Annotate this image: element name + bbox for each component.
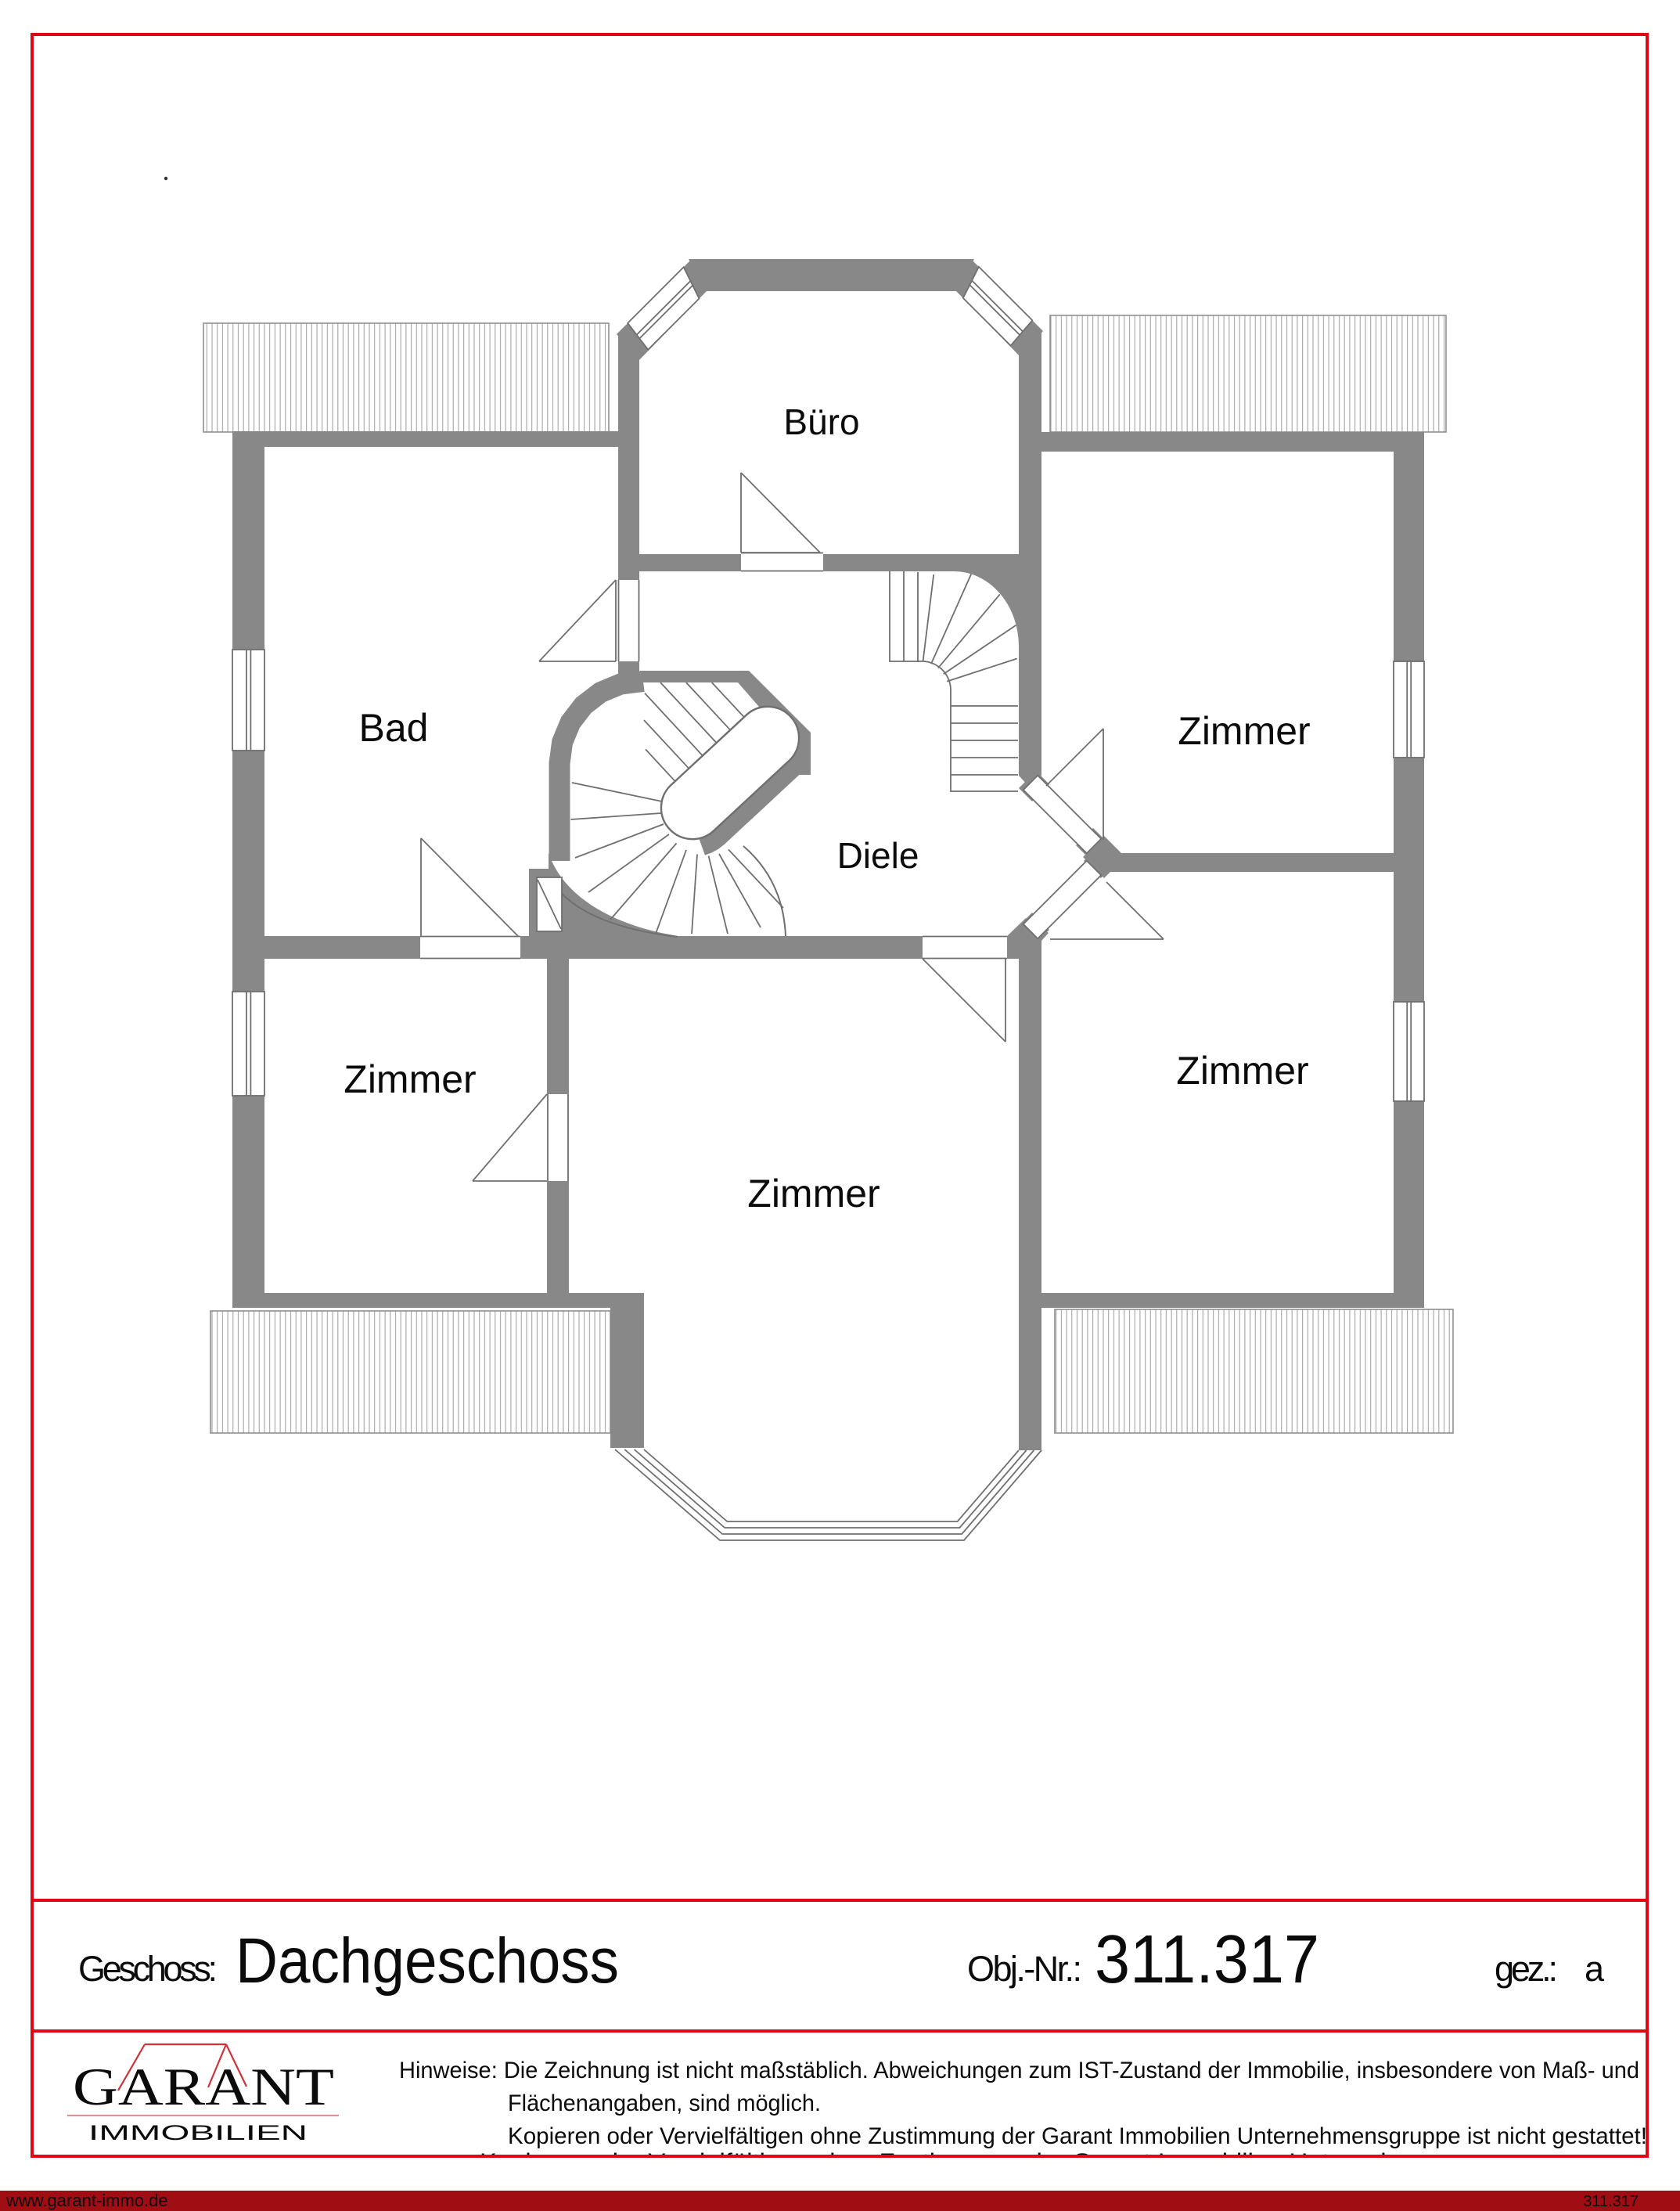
svg-text:311.317: 311.317 [1583, 2193, 1639, 2210]
svg-text:311.317: 311.317 [1095, 1921, 1319, 1997]
svg-text:Kopieren oder Vervielfältigen: Kopieren oder Vervielfältigen ohne Zusti… [508, 2123, 1647, 2149]
svg-text:Obj.-Nr.:: Obj.-Nr.: [967, 1949, 1082, 1989]
svg-text:GARANT: GARANT [73, 2057, 334, 2116]
svg-text:Dachgeschoss: Dachgeschoss [236, 1925, 619, 1997]
svg-text:Zimmer: Zimmer [747, 1172, 880, 1215]
svg-text:IMMOBILIEN: IMMOBILIEN [88, 2121, 308, 2144]
svg-text:Bad: Bad [359, 706, 429, 750]
svg-text:Diele: Diele [837, 835, 919, 876]
svg-text:a: a [1585, 1949, 1605, 1989]
svg-text:Hinweise: Die Zeichnung ist ni: Hinweise: Die Zeichnung ist nicht maßstä… [399, 2058, 1639, 2083]
svg-text:Zimmer: Zimmer [344, 1057, 476, 1101]
svg-text:Büro: Büro [783, 402, 859, 442]
svg-text:gez.:: gez.: [1495, 1949, 1558, 1989]
svg-text:Zimmer: Zimmer [1176, 1049, 1308, 1093]
svg-text:www.garant-immo.de: www.garant-immo.de [5, 2191, 168, 2210]
svg-text:Flächenangaben, sind möglich.: Flächenangaben, sind möglich. [508, 2090, 821, 2116]
svg-text:Zimmer: Zimmer [1178, 709, 1310, 753]
svg-text:Geschoss:: Geschoss: [78, 1949, 218, 1989]
